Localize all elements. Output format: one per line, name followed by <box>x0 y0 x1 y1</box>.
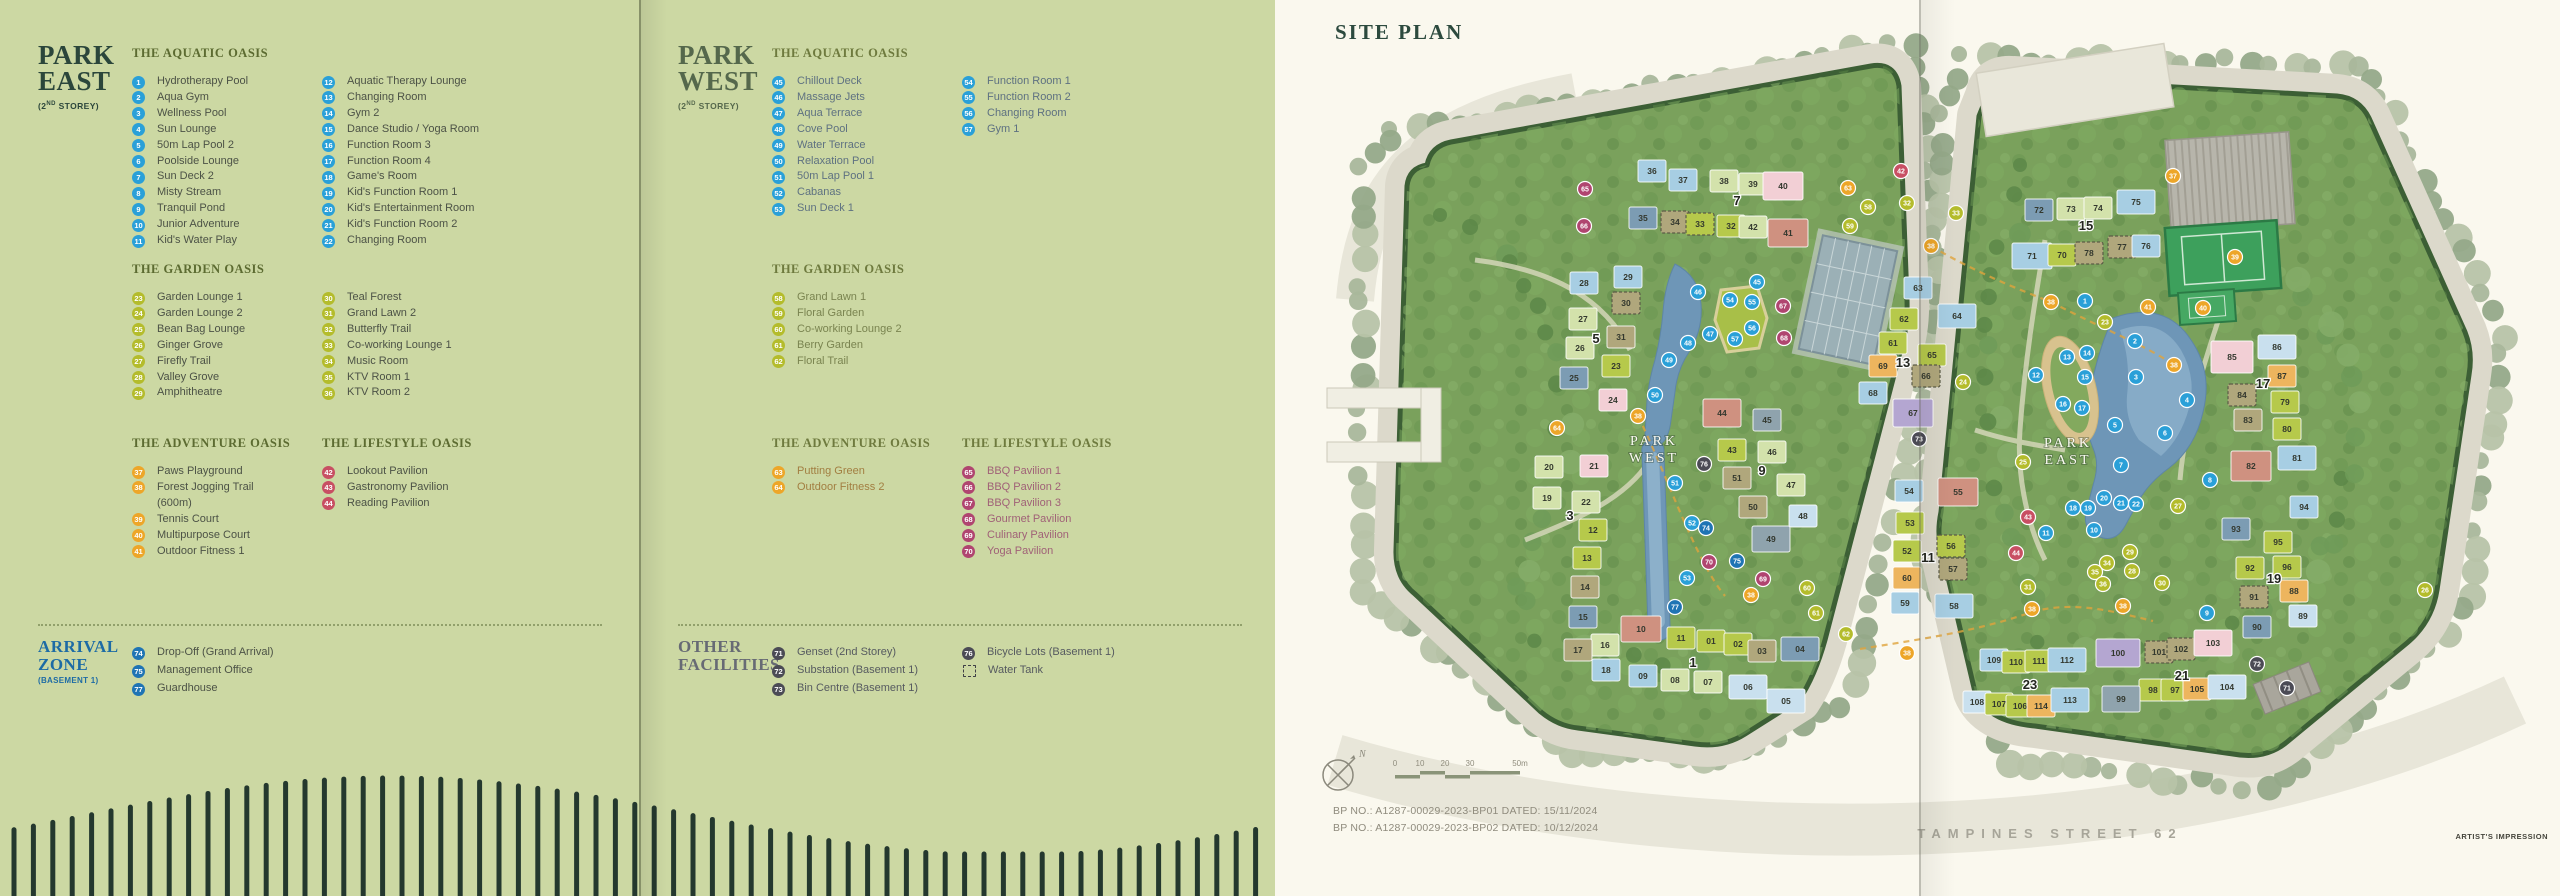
map-facility-marker: 52 <box>1685 516 1700 531</box>
legend-item-label: Function Room 4 <box>347 154 431 170</box>
block-number: 7 <box>1733 193 1740 208</box>
bp-line-2: BP NO.: A1287-00029-2023-BP02 DATED: 10/… <box>1333 820 1598 837</box>
legend-item: 19Kid's Function Room 1 <box>322 185 479 201</box>
map-building: 47 <box>1777 474 1805 496</box>
map-facility-marker: 4 <box>2180 393 2195 408</box>
map-building: 08 <box>1661 669 1689 691</box>
svg-text:12: 12 <box>2032 373 2040 380</box>
legend-item-label: Bicycle Lots (Basement 1) <box>987 645 1115 661</box>
legend-column: 54Function Room 155Function Room 256Chan… <box>962 74 1071 138</box>
svg-text:22: 22 <box>2132 502 2140 509</box>
legend-item-label: Bean Bag Lounge <box>157 322 245 338</box>
section-header: THE ADVENTURE OASIS <box>772 436 930 451</box>
legend-item: 58Grand Lawn 1 <box>772 290 902 306</box>
map-building: 34 <box>1661 211 1689 233</box>
map-building: 93 <box>2222 518 2250 540</box>
map-facility-marker: 1 <box>2078 294 2093 309</box>
svg-text:1: 1 <box>2083 299 2087 306</box>
map-building: 43 <box>1718 439 1746 461</box>
svg-text:04: 04 <box>1795 644 1805 654</box>
bp-line-1: BP NO.: A1287-00029-2023-BP01 DATED: 15/… <box>1333 803 1598 820</box>
svg-text:52: 52 <box>1902 546 1912 556</box>
map-building: 92 <box>2236 557 2264 579</box>
svg-text:62: 62 <box>1842 632 1850 639</box>
svg-text:6: 6 <box>2163 431 2167 438</box>
legend-item-label: BBQ Pavilion 1 <box>987 464 1061 480</box>
section-header: THE AQUATIC OASIS <box>772 46 908 61</box>
facility-number-badge: 3 <box>132 107 145 120</box>
map-facility-marker: 38 <box>1900 646 1915 661</box>
svg-text:75: 75 <box>1733 559 1741 566</box>
legend-item: 13Changing Room <box>322 90 479 106</box>
facility-number-badge: 16 <box>322 139 335 152</box>
legend-item: 44Reading Pavilion <box>322 496 449 512</box>
facility-number-badge: 47 <box>772 107 785 120</box>
svg-text:102: 102 <box>2174 644 2188 654</box>
other-facilities-title: OTHERFACILITIES <box>678 638 780 674</box>
svg-text:73: 73 <box>2066 204 2076 214</box>
svg-text:96: 96 <box>2282 562 2292 572</box>
map-building: 41 <box>1768 219 1808 247</box>
map-facility-marker: 51 <box>1668 476 1683 491</box>
map-building: 13 <box>1573 547 1601 569</box>
legend-item: 27Firefly Trail <box>132 354 245 370</box>
map-facility-marker: 10 <box>2087 523 2102 538</box>
facility-number-badge: 38 <box>132 481 145 494</box>
facility-number-badge: 41 <box>132 545 145 558</box>
svg-text:74: 74 <box>1702 526 1710 533</box>
legend-item: 45Chillout Deck <box>772 74 874 90</box>
facility-number-badge: 61 <box>772 339 785 352</box>
legend-item: 66BBQ Pavilion 2 <box>962 480 1071 496</box>
facility-number-badge: 68 <box>962 513 975 526</box>
map-building: 06 <box>1729 675 1767 699</box>
svg-text:67: 67 <box>1779 304 1787 311</box>
svg-text:61: 61 <box>1888 338 1898 348</box>
legend-item: 37Paws Playground <box>132 464 254 480</box>
legend-item: 30Teal Forest <box>322 290 452 306</box>
map-building: 86 <box>2258 335 2296 359</box>
block-number: 9 <box>1758 463 1765 478</box>
ribbed-roof-building <box>2165 132 2295 232</box>
legend-item-label: Tennis Court <box>157 512 219 528</box>
legend-item: 7Sun Deck 2 <box>132 169 248 185</box>
map-building: 07 <box>1694 671 1722 693</box>
svg-text:36: 36 <box>1647 166 1657 176</box>
svg-text:50: 50 <box>1651 393 1659 400</box>
map-building: 95 <box>2264 531 2292 553</box>
svg-text:38: 38 <box>2170 363 2178 370</box>
facility-number-badge: 6 <box>132 155 145 168</box>
legend-item-label: Game's Room <box>347 169 417 185</box>
svg-text:48: 48 <box>1684 341 1692 348</box>
legend-item-label: Valley Grove <box>157 370 219 386</box>
map-facility-marker: 28 <box>2125 564 2140 579</box>
legend-item: 57Gym 1 <box>962 122 1071 138</box>
map-facility-marker: 50 <box>1648 388 1663 403</box>
svg-text:46: 46 <box>1767 447 1777 457</box>
legend-item-label: Changing Room <box>347 90 427 106</box>
facility-number-badge: 13 <box>322 91 335 104</box>
map-facility-marker: 61 <box>1809 606 1824 621</box>
svg-text:08: 08 <box>1670 675 1680 685</box>
legend-item-label: Function Room 2 <box>987 90 1071 106</box>
svg-text:14: 14 <box>1580 582 1590 592</box>
svg-text:03: 03 <box>1757 646 1767 656</box>
legend-item-label: Changing Room <box>347 233 427 249</box>
legend-item: 15Dance Studio / Yoga Room <box>322 122 479 138</box>
svg-text:65: 65 <box>1581 187 1589 194</box>
legend-item-label: Water Terrace <box>797 138 865 154</box>
legend-item: 23Garden Lounge 1 <box>132 290 245 306</box>
svg-text:74: 74 <box>2093 203 2103 213</box>
legend-item-label: Management Office <box>157 663 253 679</box>
legend-column: 58Grand Lawn 159Floral Garden60Co-workin… <box>772 290 902 370</box>
map-building: 01 <box>1697 630 1725 652</box>
zone-column: 76Bicycle Lots (Basement 1)Water Tank <box>962 645 1115 681</box>
block-number: 17 <box>2256 376 2270 391</box>
facility-number-badge: 21 <box>322 219 335 232</box>
svg-text:82: 82 <box>2246 461 2256 471</box>
park-east-title: PARKEAST (2ND STOREY) <box>38 42 115 111</box>
map-building: 37 <box>1669 169 1697 191</box>
svg-text:34: 34 <box>2103 561 2111 568</box>
svg-text:18: 18 <box>2069 506 2077 513</box>
legend-item: 64Outdoor Fitness 2 <box>772 480 884 496</box>
map-building: 28 <box>1570 272 1598 294</box>
svg-text:60: 60 <box>1902 573 1912 583</box>
legend-item: 56Changing Room <box>962 106 1071 122</box>
legend-item-label: Function Room 3 <box>347 138 431 154</box>
svg-text:64: 64 <box>1553 426 1561 433</box>
legend-column: 45Chillout Deck46Massage Jets47Aqua Terr… <box>772 74 874 217</box>
svg-text:55: 55 <box>1748 300 1756 307</box>
svg-text:44: 44 <box>2012 551 2020 558</box>
legend-item: 6Poolside Lounge <box>132 154 248 170</box>
scale-label: 20 <box>1441 759 1450 768</box>
legend-item: 75Management Office <box>132 663 274 681</box>
legend-item-label: Chillout Deck <box>797 74 862 90</box>
map-facility-marker: 7 <box>2114 458 2129 473</box>
map-building: 16 <box>1591 634 1619 656</box>
svg-text:19: 19 <box>2084 506 2092 513</box>
map-facility-marker: 44 <box>2009 546 2024 561</box>
svg-text:27: 27 <box>1578 314 1588 324</box>
legend-item-label: Sun Lounge <box>157 122 216 138</box>
svg-text:68: 68 <box>1868 388 1878 398</box>
svg-text:76: 76 <box>1700 462 1708 469</box>
svg-text:45: 45 <box>1753 280 1761 287</box>
map-building: 46 <box>1758 441 1786 463</box>
svg-text:95: 95 <box>2273 537 2283 547</box>
facility-number-badge: 58 <box>772 292 785 305</box>
map-facility-marker: 38 <box>1631 409 1646 424</box>
map-building: 10 <box>1621 616 1661 642</box>
svg-text:70: 70 <box>2057 250 2067 260</box>
facility-number-badge: 42 <box>322 466 335 479</box>
map-building: 70 <box>2048 244 2076 266</box>
svg-text:71: 71 <box>2283 686 2291 693</box>
map-facility-marker: 40 <box>2196 301 2211 316</box>
svg-text:39: 39 <box>1748 179 1758 189</box>
svg-text:43: 43 <box>2024 515 2032 522</box>
legend-item: 52Cabanas <box>772 185 874 201</box>
map-building: 25 <box>1560 367 1588 389</box>
svg-text:35: 35 <box>2091 570 2099 577</box>
svg-text:100: 100 <box>2111 648 2125 658</box>
map-facility-marker: 62 <box>1839 627 1854 642</box>
legend-column: 23Garden Lounge 124Garden Lounge 225Bean… <box>132 290 245 401</box>
legend-item: 22Changing Room <box>322 233 479 249</box>
svg-text:80: 80 <box>2282 424 2292 434</box>
svg-text:10: 10 <box>1636 624 1646 634</box>
svg-text:81: 81 <box>2292 453 2302 463</box>
legend-item: Water Tank <box>962 663 1115 681</box>
map-facility-marker: 38 <box>1744 588 1759 603</box>
map-facility-marker: 55 <box>1745 295 1760 310</box>
svg-text:72: 72 <box>2034 205 2044 215</box>
map-facility-marker: 23 <box>2098 315 2113 330</box>
map-facility-marker: 42 <box>1894 164 1909 179</box>
legend-item: 62Floral Trail <box>772 354 902 370</box>
map-building: 112 <box>2048 648 2086 672</box>
facility-number-badge: 14 <box>322 107 335 120</box>
map-facility-marker: 66 <box>1577 219 1592 234</box>
svg-text:54: 54 <box>1904 486 1914 496</box>
section-header: THE ADVENTURE OASIS <box>132 436 290 451</box>
legend-item: 20Kid's Entertainment Room <box>322 201 479 217</box>
map-building: 84 <box>2228 384 2256 406</box>
scale-label: 30 <box>1466 759 1475 768</box>
map-facility-marker: 76 <box>1697 457 1712 472</box>
map-building: 102 <box>2167 638 2195 660</box>
svg-text:13: 13 <box>2063 355 2071 362</box>
svg-text:69: 69 <box>1878 361 1888 371</box>
facility-number-badge: 39 <box>132 513 145 526</box>
map-building: 05 <box>1767 689 1805 713</box>
map-facility-marker: 38 <box>2025 602 2040 617</box>
map-building: 33 <box>1686 213 1714 235</box>
legend-item: 8Misty Stream <box>132 185 248 201</box>
svg-text:30: 30 <box>1621 298 1631 308</box>
map-building: 49 <box>1752 526 1790 552</box>
svg-text:94: 94 <box>2299 502 2309 512</box>
facility-number-badge: 20 <box>322 203 335 216</box>
map-facility-marker: 36 <box>2096 577 2111 592</box>
facility-number-badge: 70 <box>962 545 975 558</box>
map-building: 72 <box>2025 199 2053 221</box>
svg-text:51: 51 <box>1732 473 1742 483</box>
svg-text:38: 38 <box>1747 593 1755 600</box>
legend-item-label: Cove Pool <box>797 122 848 138</box>
legend-item-label: 50m Lap Pool 2 <box>157 138 234 154</box>
svg-text:114: 114 <box>2034 701 2048 711</box>
legend-item-label: Aqua Terrace <box>797 106 862 122</box>
legend-item-label: Aquatic Therapy Lounge <box>347 74 467 90</box>
svg-text:53: 53 <box>1683 576 1691 583</box>
map-building: 51 <box>1723 467 1751 489</box>
map-facility-marker: 74 <box>1699 521 1714 536</box>
map-facility-marker: 5 <box>2108 418 2123 433</box>
legend-item: 32Butterfly Trail <box>322 322 452 338</box>
map-building: 104 <box>2208 675 2246 699</box>
map-facility-marker: 9 <box>2200 606 2215 621</box>
facility-number-badge: 24 <box>132 307 145 320</box>
legend-item: 29Amphitheatre <box>132 385 245 401</box>
legend-item-label: Yoga Pavilion <box>987 544 1053 560</box>
svg-text:06: 06 <box>1743 682 1753 692</box>
legend-item: 42Lookout Pavilion <box>322 464 449 480</box>
map-building: 38 <box>1710 170 1738 192</box>
legend-item: 47Aqua Terrace <box>772 106 874 122</box>
map-facility-marker: 15 <box>2078 370 2093 385</box>
svg-text:24: 24 <box>1959 380 1967 387</box>
legend-item-label: Butterfly Trail <box>347 322 411 338</box>
facility-number-badge: 4 <box>132 123 145 136</box>
legend-item-label: BBQ Pavilion 2 <box>987 480 1061 496</box>
legend-item-label: Paws Playground <box>157 464 243 480</box>
svg-text:78: 78 <box>2084 248 2094 258</box>
map-building: 17 <box>1564 639 1592 661</box>
legend-item: 67BBQ Pavilion 3 <box>962 496 1071 512</box>
legend-item-label: Cabanas <box>797 185 841 201</box>
svg-text:86: 86 <box>2272 342 2282 352</box>
map-facility-marker: 31 <box>2021 580 2036 595</box>
svg-text:15: 15 <box>2081 375 2089 382</box>
svg-text:42: 42 <box>1748 222 1758 232</box>
svg-text:02: 02 <box>1733 639 1743 649</box>
svg-text:109: 109 <box>1987 655 2001 665</box>
map-building: 90 <box>2243 616 2271 638</box>
block-number: 3 <box>1566 508 1573 523</box>
facility-number-badge: 22 <box>322 235 335 248</box>
facility-number-badge: 46 <box>772 91 785 104</box>
map-facility-marker: 27 <box>2171 499 2186 514</box>
legend-column: 63Putting Green64Outdoor Fitness 2 <box>772 464 884 496</box>
facility-number-badge: 50 <box>772 155 785 168</box>
legend-item-label: Guardhouse <box>157 681 218 697</box>
svg-text:89: 89 <box>2298 611 2308 621</box>
map-facility-marker: 22 <box>2129 497 2144 512</box>
svg-text:63: 63 <box>1844 186 1852 193</box>
map-building: 52 <box>1893 540 1921 562</box>
map-facility-marker: 75 <box>1730 554 1745 569</box>
map-building: 75 <box>2117 190 2155 214</box>
legend-item-label: Multipurpose Court <box>157 528 250 544</box>
facility-number-badge: 35 <box>322 371 335 384</box>
map-facility-marker: 21 <box>2114 496 2129 511</box>
facility-number-badge: 76 <box>962 647 975 660</box>
svg-text:45: 45 <box>1762 415 1772 425</box>
map-facility-marker: 43 <box>2021 510 2036 525</box>
legend-item-label: Culinary Pavilion <box>987 528 1069 544</box>
legend-item-label: Gourmet Pavilion <box>987 512 1071 528</box>
map-building: 79 <box>2271 391 2299 413</box>
map-building: 36 <box>1638 160 1666 182</box>
legend-item: 9Tranquil Pond <box>132 201 248 217</box>
map-building: 89 <box>2289 605 2317 627</box>
svg-text:37: 37 <box>1678 175 1688 185</box>
svg-text:51: 51 <box>1671 481 1679 488</box>
svg-text:75: 75 <box>2131 197 2141 207</box>
map-building: 04 <box>1781 637 1819 661</box>
map-facility-marker: 20 <box>2097 491 2112 506</box>
facility-number-badge: 19 <box>322 187 335 200</box>
legend-item: 31Grand Lawn 2 <box>322 306 452 322</box>
map-facility-marker: 71 <box>2280 681 2295 696</box>
map-facility-marker: 45 <box>1750 275 1765 290</box>
svg-text:58: 58 <box>1864 205 1872 212</box>
facility-number-badge: 9 <box>132 203 145 216</box>
legend-item-label: Misty Stream <box>157 185 221 201</box>
map-facility-marker: 25 <box>2016 455 2031 470</box>
svg-text:40: 40 <box>1778 181 1788 191</box>
facility-number-badge: 74 <box>132 647 145 660</box>
svg-text:68: 68 <box>1780 336 1788 343</box>
map-facility-marker: 3 <box>2129 370 2144 385</box>
svg-text:47: 47 <box>1706 332 1714 339</box>
arrival-zone-title: ARRIVALZONE (BASEMENT 1) <box>38 638 119 685</box>
svg-text:88: 88 <box>2289 586 2299 596</box>
svg-text:52: 52 <box>1688 521 1696 528</box>
facility-number-badge: 72 <box>772 665 785 678</box>
svg-text:28: 28 <box>2128 569 2136 576</box>
tennis-court <box>2165 220 2281 296</box>
map-facility-marker: 49 <box>1662 353 1677 368</box>
facility-number-badge: 31 <box>322 307 335 320</box>
facility-number-badge: 52 <box>772 187 785 200</box>
facility-number-badge: 2 <box>132 91 145 104</box>
facility-number-badge: 33 <box>322 339 335 352</box>
legend-item: 61Berry Garden <box>772 338 902 354</box>
facility-number-badge: 62 <box>772 355 785 368</box>
facility-number-badge: 73 <box>772 683 785 696</box>
legend-item: 72Substation (Basement 1) <box>772 663 918 681</box>
legend-item: 25Bean Bag Lounge <box>132 322 245 338</box>
page-fold-shadow <box>641 0 667 896</box>
svg-text:38: 38 <box>1903 651 1911 658</box>
svg-text:38: 38 <box>2119 604 2127 611</box>
map-facility-marker: 72 <box>2250 657 2265 672</box>
svg-text:87: 87 <box>2277 371 2287 381</box>
legend-item: 39Tennis Court <box>132 512 254 528</box>
svg-text:72: 72 <box>2253 662 2261 669</box>
scale-label: 0 <box>1393 759 1398 768</box>
legend-column: 65BBQ Pavilion 166BBQ Pavilion 267BBQ Pa… <box>962 464 1071 559</box>
facility-number-badge: 65 <box>962 466 975 479</box>
legend-item: 41Outdoor Fitness 1 <box>132 544 254 560</box>
facility-number-badge: 53 <box>772 203 785 216</box>
map-facility-marker: 47 <box>1703 327 1718 342</box>
block-number: 21 <box>2175 668 2189 683</box>
facility-number-badge: 30 <box>322 292 335 305</box>
page-fold-shadow <box>1921 0 1955 896</box>
park-west-title: PARKWEST (2ND STOREY) <box>678 42 758 111</box>
map-building: 68 <box>1859 382 1887 404</box>
legend-item-label: Wellness Pool <box>157 106 227 122</box>
map-facility-marker: 29 <box>2123 545 2138 560</box>
legend-column: 42Lookout Pavilion43Gastronomy Pavilion4… <box>322 464 449 512</box>
map-facility-marker: 32 <box>1900 196 1915 211</box>
legend-item: 33Co-working Lounge 1 <box>322 338 452 354</box>
map-facility-marker: 64 <box>1550 421 1565 436</box>
facility-number-badge: 43 <box>322 481 335 494</box>
facility-number-badge: 64 <box>772 481 785 494</box>
facility-number-badge: 8 <box>132 187 145 200</box>
svg-text:71: 71 <box>2027 251 2037 261</box>
svg-text:85: 85 <box>2227 352 2237 362</box>
legend-item: 26Ginger Grove <box>132 338 245 354</box>
